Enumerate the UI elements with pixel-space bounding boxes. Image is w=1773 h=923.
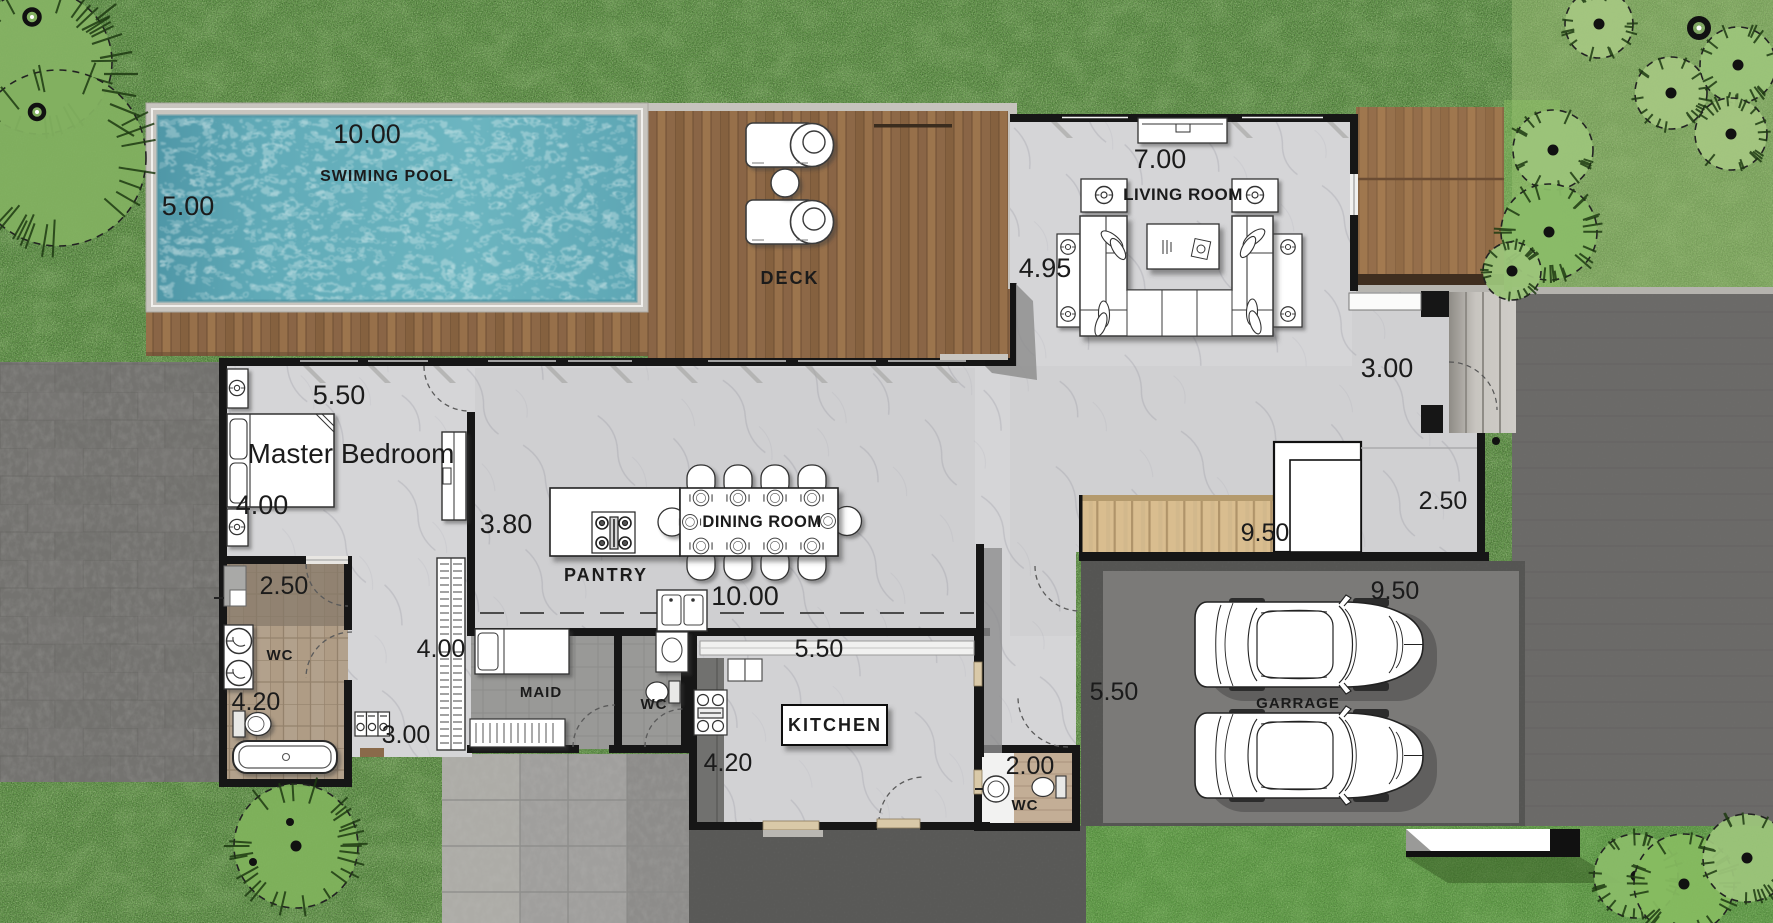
- svg-text:GARRAGE: GARRAGE: [1256, 695, 1340, 712]
- svg-text:5.00: 5.00: [162, 191, 215, 221]
- svg-text:LIVING ROOM: LIVING ROOM: [1123, 185, 1243, 204]
- svg-text:3.00: 3.00: [382, 721, 431, 749]
- svg-text:DECK: DECK: [760, 268, 819, 288]
- svg-text:10.00: 10.00: [711, 581, 779, 611]
- svg-text:5.50: 5.50: [795, 635, 844, 663]
- svg-text:3.00: 3.00: [1361, 353, 1414, 383]
- svg-text:5.50: 5.50: [1090, 678, 1139, 706]
- svg-text:4.00: 4.00: [236, 490, 289, 520]
- svg-text:2.50: 2.50: [260, 572, 309, 600]
- svg-text:DINING ROOM: DINING ROOM: [702, 513, 821, 531]
- svg-text:10.00: 10.00: [333, 119, 401, 149]
- svg-text:MAID: MAID: [520, 684, 562, 701]
- svg-text:5.50: 5.50: [313, 380, 366, 410]
- svg-text:2.50: 2.50: [1419, 487, 1468, 515]
- svg-text:4.00: 4.00: [417, 635, 466, 663]
- svg-text:4.20: 4.20: [232, 688, 281, 716]
- svg-text:PANTRY: PANTRY: [564, 565, 648, 585]
- svg-text:7.00: 7.00: [1134, 144, 1187, 174]
- svg-text:WC: WC: [267, 647, 294, 664]
- svg-text:9.50: 9.50: [1241, 519, 1290, 547]
- svg-text:Master Bedroom: Master Bedroom: [248, 438, 455, 469]
- svg-text:2.00: 2.00: [1006, 752, 1055, 780]
- svg-text:WC: WC: [1012, 797, 1039, 814]
- svg-text:4.95: 4.95: [1019, 253, 1072, 283]
- svg-text:WC: WC: [641, 696, 668, 713]
- svg-text:4.20: 4.20: [704, 749, 753, 777]
- svg-text:3.80: 3.80: [480, 509, 533, 539]
- svg-text:9.50: 9.50: [1371, 577, 1420, 605]
- svg-text:SWIMING POOL: SWIMING POOL: [320, 168, 454, 185]
- svg-text:KITCHEN: KITCHEN: [788, 715, 882, 735]
